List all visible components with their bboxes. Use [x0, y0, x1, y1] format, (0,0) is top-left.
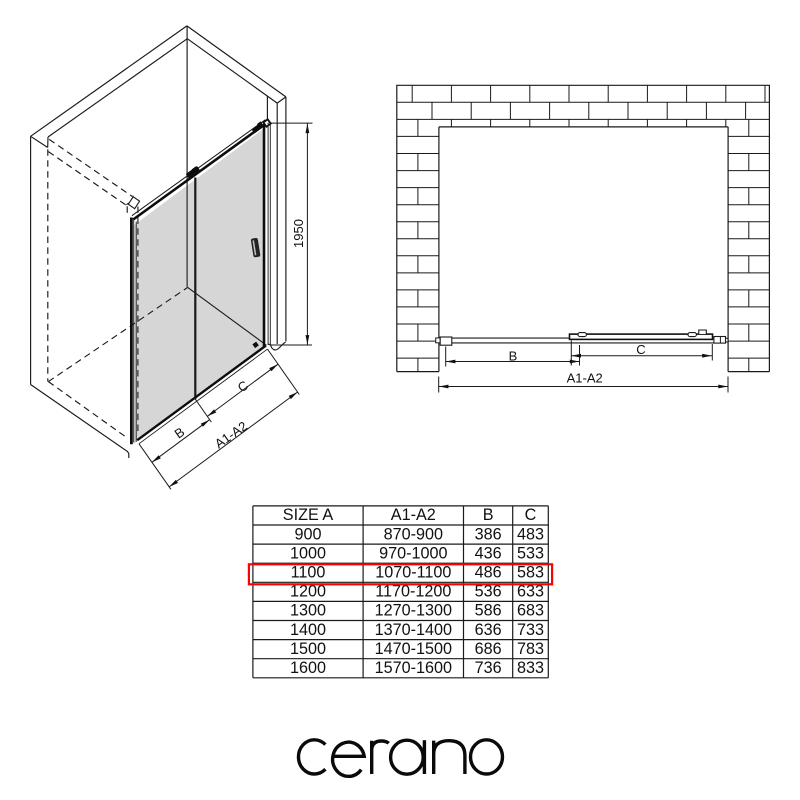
svg-text:586: 586	[475, 602, 502, 620]
svg-text:1470-1500: 1470-1500	[375, 640, 452, 658]
svg-text:1600: 1600	[290, 659, 326, 677]
svg-text:970-1000: 970-1000	[379, 544, 447, 562]
svg-text:B: B	[509, 349, 518, 364]
svg-text:683: 683	[517, 602, 544, 620]
svg-text:1570-1600: 1570-1600	[375, 659, 452, 677]
svg-text:636: 636	[475, 621, 502, 639]
svg-text:736: 736	[475, 659, 502, 677]
svg-text:B: B	[483, 506, 494, 524]
svg-text:1400: 1400	[290, 621, 326, 639]
svg-text:833: 833	[517, 659, 544, 677]
svg-text:533: 533	[517, 544, 544, 562]
svg-text:1300: 1300	[290, 602, 326, 620]
svg-text:386: 386	[475, 525, 502, 543]
svg-text:A1-A2: A1-A2	[567, 371, 603, 386]
svg-text:436: 436	[475, 544, 502, 562]
svg-text:900: 900	[294, 525, 321, 543]
svg-text:1370-1400: 1370-1400	[375, 621, 452, 639]
svg-text:A1-A2: A1-A2	[391, 506, 436, 524]
svg-text:483: 483	[517, 525, 544, 543]
svg-text:686: 686	[475, 640, 502, 658]
svg-text:1070-1100: 1070-1100	[375, 564, 451, 582]
svg-text:SIZE A: SIZE A	[283, 506, 334, 524]
svg-text:1950: 1950	[291, 219, 306, 248]
svg-text:486: 486	[475, 564, 502, 582]
svg-text:783: 783	[517, 640, 544, 658]
svg-text:1500: 1500	[290, 640, 326, 658]
svg-text:583: 583	[517, 564, 544, 582]
svg-text:C: C	[636, 342, 645, 357]
svg-text:733: 733	[517, 621, 544, 639]
svg-text:1270-1300: 1270-1300	[375, 602, 452, 620]
svg-text:1000: 1000	[290, 544, 326, 562]
svg-text:870-900: 870-900	[384, 525, 443, 543]
svg-text:C: C	[525, 506, 537, 524]
svg-text:1100: 1100	[291, 564, 326, 582]
